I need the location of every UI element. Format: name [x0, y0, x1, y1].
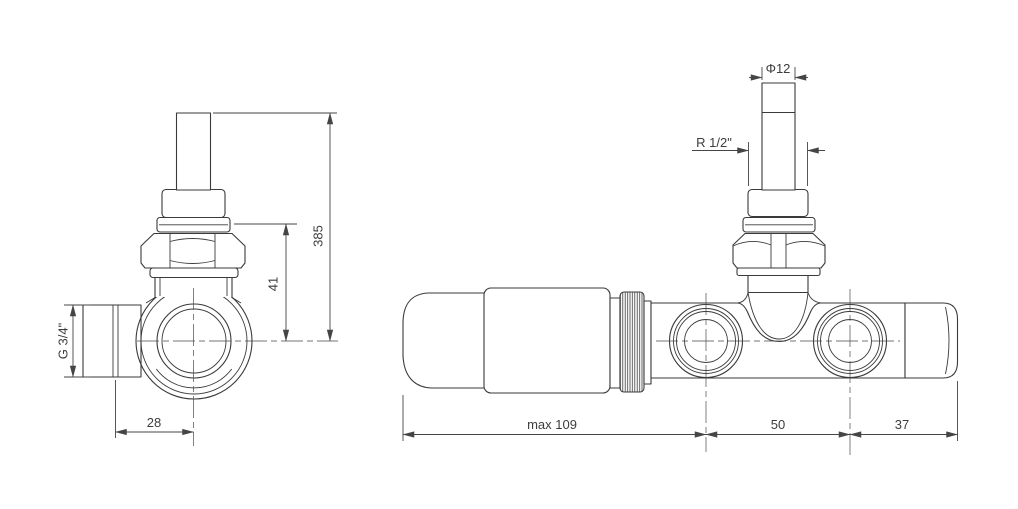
- dim-pipe-diameter: Φ12: [749, 61, 808, 80]
- valve-body-front: [651, 275, 958, 378]
- dim-union-to-center: 41: [234, 224, 297, 341]
- front-view: Φ12 R 1/2" max 109 50 37: [403, 61, 958, 458]
- head-collar: [610, 298, 620, 388]
- union-nut-front: [733, 234, 825, 269]
- collar-front: [748, 190, 808, 217]
- valve-body-side: [136, 268, 252, 399]
- dim-port-spacing: 50: [706, 417, 850, 435]
- dim-label-union-to-center: 41: [266, 277, 281, 291]
- dim-total-height: 385: [213, 113, 337, 341]
- dim-label-total-height: 385: [311, 225, 326, 247]
- dim-top-thread: R 1/2": [692, 135, 825, 186]
- drawing-canvas: 385 41 28 G 3/4": [0, 0, 1018, 509]
- side-view: 385 41 28 G 3/4": [56, 113, 339, 446]
- end-cap: [905, 303, 958, 378]
- washer-side: [157, 218, 230, 233]
- dim-label-tail-length: 37: [895, 417, 909, 432]
- dim-label-top-thread: R 1/2": [696, 135, 732, 150]
- ring-step: [644, 301, 651, 384]
- stem-pipe-front: [762, 83, 795, 190]
- thermostatic-head: [403, 288, 651, 393]
- dim-center-to-thread: 28: [116, 380, 194, 438]
- head-body: [484, 288, 610, 393]
- stem-pipe-side: [177, 113, 211, 190]
- collar-side: [162, 190, 225, 218]
- dim-label-pipe-diameter: Φ12: [766, 61, 791, 76]
- washer-front: [743, 218, 815, 233]
- nut-rim: [737, 268, 820, 276]
- dim-tail-length: 37: [850, 381, 958, 441]
- dim-label-port-spacing: 50: [771, 417, 785, 432]
- technical-drawing: 385 41 28 G 3/4": [0, 0, 1018, 509]
- union-nut-side: [141, 234, 245, 269]
- dim-label-head-length: max 109: [527, 417, 577, 432]
- dim-label-side-thread: G 3/4": [56, 322, 71, 359]
- knurl-ring: [620, 292, 644, 392]
- dim-label-center-to-thread: 28: [147, 415, 161, 430]
- body-rim: [150, 268, 238, 278]
- dim-head-length: max 109: [403, 395, 706, 441]
- tailpiece: [83, 305, 141, 377]
- riser-assembly: [733, 83, 825, 276]
- head-end-cap: [403, 293, 485, 388]
